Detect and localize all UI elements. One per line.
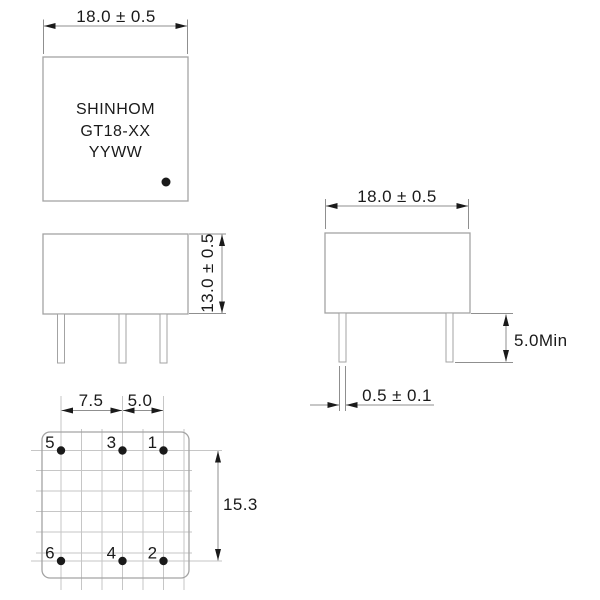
side-view-pin-1: [58, 314, 65, 363]
side-view-pin-3: [160, 314, 167, 363]
side-view: 13.0 ± 0.5: [43, 233, 226, 363]
pitch-b-dimension-label: 5.0: [128, 391, 153, 410]
pin-number-5: 5: [45, 433, 55, 452]
pin-number-2: 2: [148, 544, 158, 563]
pin-pad-5: [57, 446, 65, 454]
pin-diameter-dimension-label: 0.5 ± 0.1: [362, 386, 432, 405]
pin-pad-4: [118, 557, 126, 565]
pin1-indicator-dot: [162, 178, 171, 187]
pin-length-dimension-label: 5.0Min: [514, 331, 567, 350]
front-view-width-dimension-label: 18.0 ± 0.5: [357, 187, 437, 206]
package-outline-side-view: [43, 234, 188, 314]
front-view: 18.0 ± 0.5 5.0Min 0.5 ± 0.1: [310, 187, 567, 411]
top-view: 18.0 ± 0.5 SHINHOM GT18-XX YYWW: [43, 7, 188, 201]
package-outline-front-view: [325, 233, 470, 313]
pin-number-6: 6: [45, 544, 55, 563]
pin-number-4: 4: [107, 544, 117, 563]
model-text: GT18-XX: [80, 123, 150, 140]
row-spacing-dimension-label: 15.3: [223, 495, 258, 514]
pin-number-3: 3: [107, 433, 117, 452]
side-view-height-dimension-label: 13.0 ± 0.5: [198, 233, 217, 313]
side-view-pin-2: [119, 314, 126, 363]
pitch-a-dimension-label: 7.5: [79, 391, 104, 410]
front-view-pin-left: [339, 313, 346, 362]
technical-drawing: 18.0 ± 0.5 SHINHOM GT18-XX YYWW 13.0 ± 0…: [0, 0, 600, 600]
pin-pad-6: [57, 557, 65, 565]
pin-pad-2: [159, 557, 167, 565]
front-view-pin-right: [446, 313, 453, 362]
datecode-text: YYWW: [89, 144, 143, 161]
pin-pad-3: [118, 446, 126, 454]
bottom-view: 7.5 5.0 15.3 5 3 1 6 4 2: [31, 391, 258, 590]
dimension-drawing-page: 18.0 ± 0.5 SHINHOM GT18-XX YYWW 13.0 ± 0…: [0, 0, 600, 600]
brand-text: SHINHOM: [76, 101, 155, 118]
pin-pad-1: [159, 446, 167, 454]
top-view-width-dimension-label: 18.0 ± 0.5: [76, 7, 156, 26]
pin-number-1: 1: [148, 433, 158, 452]
